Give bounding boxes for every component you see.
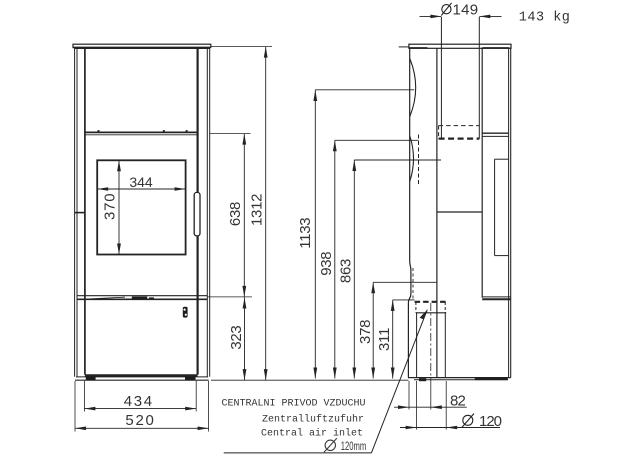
svg-text:520: 520 xyxy=(125,412,155,429)
svg-text:Central air inlet: Central air inlet xyxy=(261,427,363,439)
svg-text:323: 323 xyxy=(228,326,245,350)
svg-text:CENTRALNI PRIVOD VZDUCHU: CENTRALNI PRIVOD VZDUCHU xyxy=(221,399,365,410)
svg-text:638: 638 xyxy=(227,202,244,226)
svg-text:863: 863 xyxy=(338,259,355,283)
svg-text:370: 370 xyxy=(102,193,119,220)
svg-text:82: 82 xyxy=(450,393,466,410)
svg-text:434: 434 xyxy=(124,393,154,410)
svg-text:1133: 1133 xyxy=(297,218,314,249)
svg-text:143 kg: 143 kg xyxy=(519,10,571,25)
svg-text:120mm: 120mm xyxy=(341,441,367,453)
svg-text:149: 149 xyxy=(453,1,479,18)
svg-text:Zentralluftzufuhr: Zentralluftzufuhr xyxy=(262,413,364,425)
svg-text:378: 378 xyxy=(357,320,374,344)
svg-text:311: 311 xyxy=(376,328,393,351)
svg-text:1312: 1312 xyxy=(249,194,266,226)
svg-text:120: 120 xyxy=(479,413,502,430)
svg-text:938: 938 xyxy=(318,252,335,276)
svg-text:344: 344 xyxy=(129,174,153,190)
